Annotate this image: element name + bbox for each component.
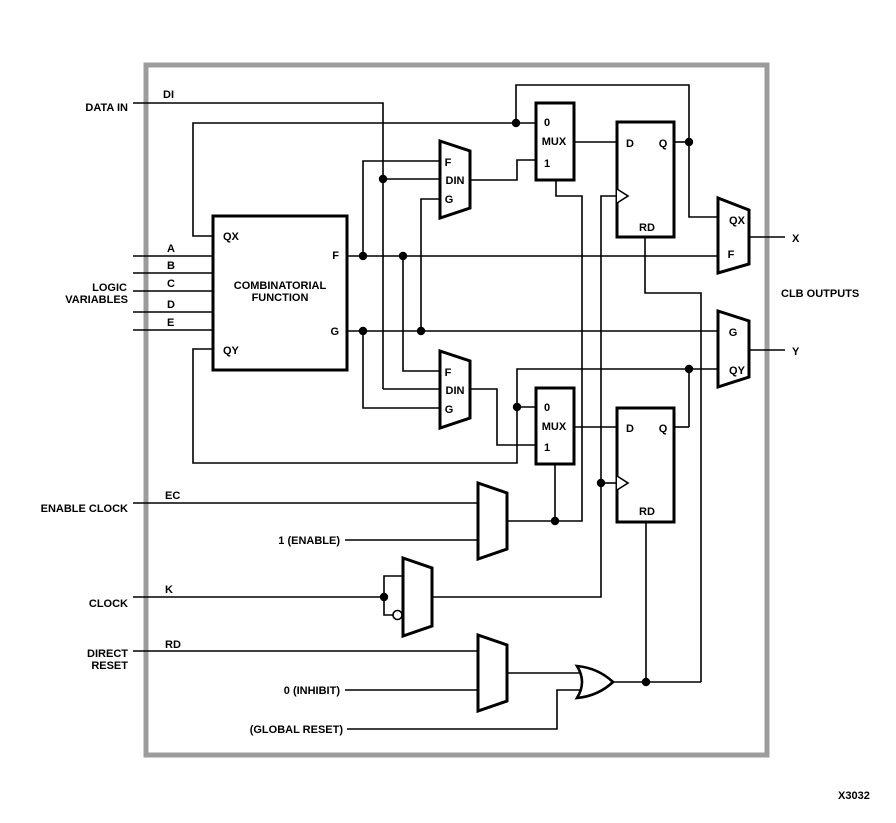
reset-or-gate: [577, 666, 613, 698]
label-clb-outputs: CLB OUTPUTS: [781, 288, 859, 300]
label-enable-clock: ENABLE CLOCK: [41, 503, 128, 515]
wire-global-reset: [347, 690, 584, 729]
label-mux1-mux: MUX: [542, 136, 567, 148]
label-ff1-d: D: [626, 138, 634, 150]
label-di: DI: [163, 89, 174, 101]
label-ymux-qy: QY: [729, 365, 746, 377]
label-ff1-q: Q: [659, 138, 668, 150]
label-input-c: C: [167, 278, 175, 290]
label-cf-line1: COMBINATORIAL: [234, 280, 327, 292]
label-ff1-rd: RD: [639, 222, 655, 234]
label-input-a: A: [167, 243, 175, 255]
label-mux2-1: 1: [544, 442, 550, 454]
label-dinmux1-din: DIN: [446, 175, 465, 187]
wire-ecmux-out: [507, 180, 582, 521]
label-cf-f: F: [332, 250, 339, 262]
label-ff2-d: D: [626, 423, 634, 435]
junction-dot-8: [513, 403, 521, 411]
clock-polarity-mux: [403, 558, 432, 636]
junction-dot-10: [551, 517, 559, 525]
clb-block-diagram: DATA INDILOGICVARIABLESABCDEENABLE CLOCK…: [0, 0, 896, 823]
junction-dot-9: [597, 479, 605, 487]
junction-dot-0: [512, 119, 520, 127]
x-output-mux: [718, 198, 749, 273]
label-cf-g: G: [330, 326, 339, 338]
label-mux1-0: 0: [544, 117, 550, 129]
junction-dot-7: [685, 365, 693, 373]
wire-k-direct: [384, 576, 403, 597]
clock-invert-bubble: [393, 611, 402, 620]
label-rd: RD: [165, 639, 181, 651]
label-dinmux1-g: G: [445, 194, 454, 206]
label-xmux-qx: QX: [729, 215, 746, 227]
label-x-output: X: [792, 233, 800, 245]
wire-g-to-dinmux2: [363, 331, 440, 408]
reset-mux: [478, 635, 507, 711]
label-input-d: D: [167, 299, 175, 311]
label-xmux-f: F: [728, 249, 735, 261]
label-mux1-1: 1: [544, 158, 550, 170]
label-ymux-g: G: [729, 327, 738, 339]
wire-f-to-dinmux1: [363, 161, 440, 256]
label-dinmux1-f: F: [445, 157, 452, 169]
label-reset: RESET: [91, 660, 128, 672]
label-clock: CLOCK: [89, 598, 128, 610]
label-data-in: DATA IN: [85, 102, 128, 114]
wire-dinmux1-out: [470, 160, 536, 180]
enable-clock-mux: [478, 483, 507, 559]
label-one-enable: 1 (ENABLE): [278, 535, 340, 547]
label-variables: VARIABLES: [65, 294, 128, 306]
label-dinmux2-g: G: [445, 404, 454, 416]
label-cf-line2: FUNCTION: [252, 292, 309, 304]
label-direct: DIRECT: [87, 648, 128, 660]
label-input-b: B: [167, 260, 175, 272]
label-k: K: [165, 584, 173, 596]
label-input-e: E: [167, 317, 174, 329]
label-y-output: Y: [792, 346, 800, 358]
label-dinmux2-din: DIN: [446, 385, 465, 397]
label-dinmux2-f: F: [445, 367, 452, 379]
junction-dot-1: [685, 138, 693, 146]
label-cf-qy: QY: [223, 345, 240, 357]
label-mux2-0: 0: [544, 402, 550, 414]
clb-block-diagram-figure: DATA INDILOGICVARIABLESABCDEENABLE CLOCK…: [0, 0, 896, 823]
wire-dinmux2-out: [470, 389, 536, 445]
junction-dot-6: [417, 327, 425, 335]
label-ff2-q: Q: [659, 423, 668, 435]
label-logic: LOGIC: [92, 282, 127, 294]
junction-dot-5: [359, 327, 367, 335]
junction-dot-3: [359, 252, 367, 260]
junction-dot-11: [380, 593, 388, 601]
label-cf-qx: QX: [223, 231, 240, 243]
junction-dot-4: [399, 252, 407, 260]
wire-g-to-dinmux1: [421, 199, 440, 331]
label-mux2-mux: MUX: [542, 421, 567, 433]
label-global-reset: (GLOBAL RESET): [250, 724, 344, 736]
label-zero-inhibit: 0 (INHIBIT): [284, 685, 341, 697]
junction-dot-12: [642, 678, 650, 686]
junction-dot-2: [379, 175, 387, 183]
label-ff2-rd: RD: [639, 506, 655, 518]
label-figure-id: X3032: [838, 790, 870, 802]
label-ec: EC: [165, 490, 180, 502]
wire-qy-to-outmux: [689, 369, 718, 427]
